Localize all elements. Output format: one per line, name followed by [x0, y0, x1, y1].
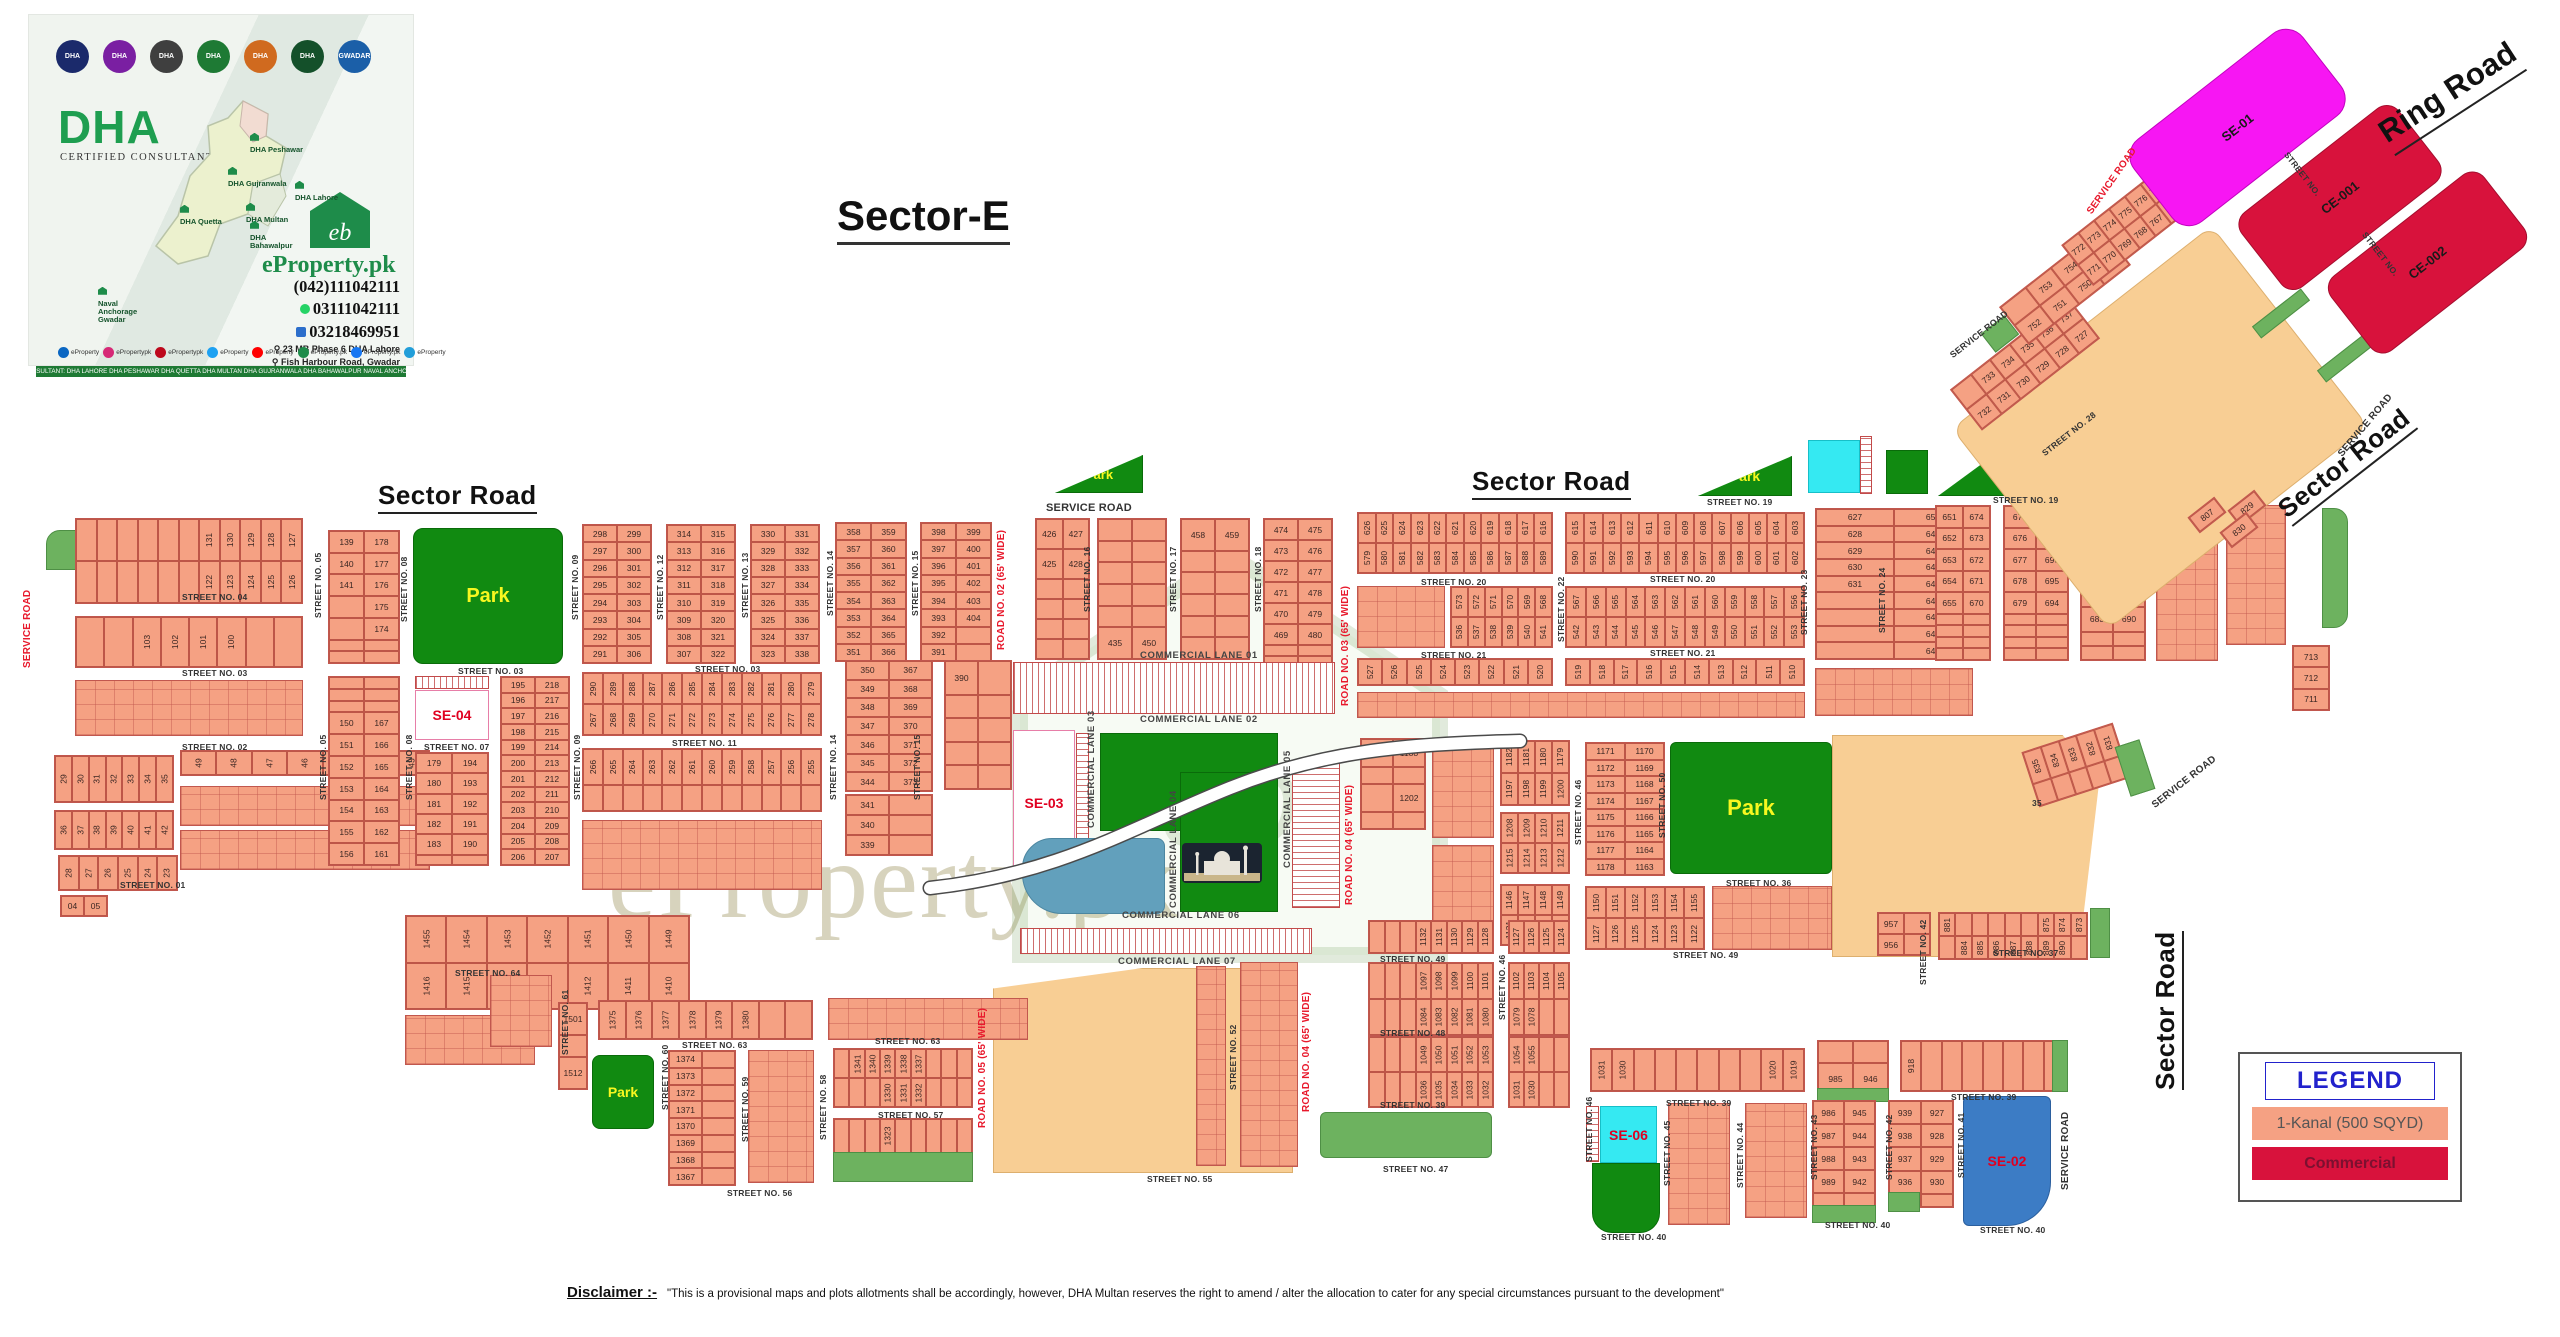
plot-block: 3303313293323283333273343263353253363243…	[750, 524, 820, 664]
partner-logo-icon: DHA	[197, 40, 230, 73]
plot-cell: 327	[751, 577, 785, 594]
plot-cell: 193	[452, 773, 488, 793]
plot-block	[1668, 1103, 1730, 1225]
plot-cell: 211	[535, 787, 569, 803]
plot-cell: 305	[617, 629, 651, 646]
plot-cell	[1063, 639, 1090, 659]
plot-cell: 279	[801, 673, 821, 704]
plot-cell: 620	[1464, 513, 1482, 543]
plot-block: 651674652673653672654671655670	[1935, 505, 1991, 661]
plot-cell: 652	[1936, 528, 1963, 550]
plot-cell: 885	[1972, 936, 1988, 959]
plot-cell: 550	[1725, 617, 1745, 647]
plot-cell: 316	[701, 542, 735, 559]
plot-cell	[643, 785, 663, 811]
plot-block: 29303132333435	[54, 755, 174, 803]
city-marker: DHA Peshawar	[250, 128, 310, 154]
street-label: STREET NO. 18	[1253, 547, 1263, 612]
plot-cell: 551	[1745, 617, 1765, 647]
plot-cell: 396	[921, 558, 956, 575]
plot-cell: 367	[889, 661, 932, 680]
plot-cell: 326	[751, 594, 785, 611]
plot-cell: 40	[122, 811, 139, 849]
green-strip	[1320, 1112, 1492, 1158]
plot-cell: 624	[1393, 513, 1411, 543]
plot-cell: 366	[871, 644, 906, 661]
plot-cell: 943	[1844, 1147, 1875, 1170]
plot-cell: 927	[1921, 1101, 1953, 1124]
plot-cell: 622	[1429, 513, 1447, 543]
plot-cell: 537	[1468, 617, 1485, 647]
map-block	[1808, 440, 1860, 493]
plot-cell: 559	[1725, 587, 1745, 617]
plot-block: 2902892882872862852842832822812802792672…	[582, 672, 822, 736]
plot-cell: 695	[2036, 571, 2068, 593]
plot-cell: 152	[329, 756, 364, 778]
plot-cell: 344	[846, 772, 889, 791]
plot-cell: 1369	[669, 1135, 702, 1152]
street-label: STREET NO. 19	[1993, 495, 2058, 505]
plot-cell: 333	[785, 560, 819, 577]
plot-cell: 274	[722, 704, 742, 735]
plot-cell: 459	[1215, 519, 1249, 551]
plot-cell: 258	[742, 749, 762, 785]
plot-cell: 351	[836, 644, 871, 661]
street-label: STREET NO. 21	[1421, 650, 1486, 660]
plot-cell	[274, 617, 302, 667]
phone-landline: (042)111042111	[272, 276, 400, 298]
plot-cell	[1132, 519, 1166, 541]
street-label: STREET NO. 16	[1082, 547, 1092, 612]
plot-cell: 1031	[1509, 1072, 1524, 1107]
plot-cell: 1173	[1586, 776, 1625, 793]
plot-cell: 564	[1626, 587, 1646, 617]
plot-cell: 181	[416, 794, 452, 814]
plot-cell: 191	[452, 814, 488, 834]
plot-cell: 1033	[1462, 1072, 1478, 1107]
plot-cell	[941, 1119, 956, 1153]
plot-cell: 1019	[1783, 1049, 1804, 1091]
street-label: STREET NO. 22	[1556, 577, 1566, 642]
plot-block: 527526525524523522521520	[1357, 658, 1553, 686]
plot-cell: 469	[1264, 624, 1298, 645]
plot-cell	[329, 596, 364, 618]
plot-cell: 929	[1921, 1147, 1953, 1170]
plot-cell: 591	[1584, 543, 1602, 573]
plot-cell	[1181, 594, 1215, 616]
commercial-lane-label: COMMERCIAL LANE 02	[1140, 714, 1258, 725]
plot-cell	[945, 765, 978, 789]
plot-cell: 319	[701, 594, 735, 611]
plot-cell	[1963, 637, 1990, 649]
plot-cell: 605	[1749, 513, 1767, 543]
dha-house-icon	[295, 181, 304, 189]
plot-cell: 302	[617, 577, 651, 594]
plot-cell: 546	[1645, 617, 1665, 647]
plot-cell: 269	[623, 704, 643, 735]
plot-cell	[364, 677, 399, 689]
plot-block: 13741373137213711370136913681367	[668, 1050, 736, 1186]
plot-cell: 670	[1963, 592, 1990, 614]
plot-cell: 1099	[1447, 963, 1463, 999]
legend-item-commercial: Commercial	[2252, 1147, 2448, 1180]
plot-cell: 579	[1358, 543, 1376, 573]
plot-cell: 257	[762, 749, 782, 785]
plot-cell: 390	[945, 661, 978, 695]
plot-cell: 1030	[1524, 1072, 1539, 1107]
plot-cell: 536	[1451, 617, 1468, 647]
plot-cell	[1963, 648, 1990, 660]
plot-cell: 515	[1661, 659, 1685, 685]
plot-cell: 519	[1566, 659, 1590, 685]
plot-cell	[702, 1085, 735, 1102]
plot-cell: 547	[1665, 617, 1685, 647]
plot-cell: 1177	[1586, 842, 1625, 859]
plot-cell: 1079	[1509, 999, 1524, 1035]
social-link: ePropertypk	[155, 347, 203, 358]
plot-cell: 267	[583, 704, 603, 735]
plot-cell	[1385, 921, 1401, 953]
plot-cell: 313	[667, 542, 701, 559]
plot-cell: 217	[535, 693, 569, 709]
plot-cell: 35	[156, 756, 173, 802]
dha-house-icon	[98, 287, 107, 295]
plot-cell	[957, 1119, 972, 1153]
street-label: STREET NO. 14	[828, 735, 838, 800]
zone-park: Park	[1698, 456, 1792, 496]
street-label: STREET NO. 57	[878, 1110, 943, 1120]
plot-cell: 526	[1382, 659, 1406, 685]
plot-cell: 304	[617, 611, 651, 628]
plot-cell: 322	[701, 646, 735, 663]
street-label: ROAD NO. 02 (65' WIDE)	[996, 530, 1007, 650]
plot-cell: 47	[252, 751, 287, 775]
plot-block: 12081209121012111215121412131212	[1500, 812, 1570, 874]
plot-cell: 1212	[1552, 843, 1569, 873]
plot-cell	[2036, 614, 2068, 626]
plot-cell: 373	[889, 772, 932, 791]
plot-cell: 337	[785, 629, 819, 646]
plot-cell: 129	[240, 519, 261, 561]
plot-cell: 364	[871, 609, 906, 626]
plot-cell	[1036, 639, 1063, 659]
plot-cell	[1098, 584, 1132, 606]
plot-cell: 1123	[1665, 918, 1685, 949]
plot-block	[1240, 962, 1298, 1167]
plot-cell: 1124	[1645, 918, 1665, 949]
plot-cell: 1122	[1684, 918, 1704, 949]
plot-cell: 218	[535, 677, 569, 693]
plot-cell: 330	[751, 525, 785, 542]
zone-park: Park	[592, 1055, 654, 1129]
plot-cell: 284	[702, 673, 722, 704]
plot-cell: 286	[662, 673, 682, 704]
plot-cell: 613	[1603, 513, 1621, 543]
plot-cell: 317	[701, 560, 735, 577]
plot-cell: 216	[535, 708, 569, 724]
plot-cell: 541	[1535, 617, 1552, 647]
plot-block	[1815, 668, 1973, 716]
plot-cell: 874	[2054, 913, 2070, 936]
plot-block	[1357, 586, 1445, 648]
plot-cell: 156	[329, 843, 364, 865]
social-link: eProperty	[207, 347, 248, 358]
plot-cell: 321	[701, 629, 735, 646]
plot-cell: 1416	[406, 963, 446, 1010]
street-label: STREET NO. 42	[1918, 920, 1928, 985]
plot-cell: 1373	[669, 1068, 702, 1085]
street-label: STREET NO. 07	[424, 742, 489, 752]
plot-cell: 1170	[1625, 743, 1664, 760]
plot-cell: 426	[1036, 519, 1063, 549]
mobile-icon	[296, 327, 306, 337]
plot-cell: 352	[836, 627, 871, 644]
plot-cell: 1323	[880, 1119, 895, 1153]
plot-cell	[452, 855, 488, 865]
commercial-lane-label: COMMERCIAL LANE 06	[1122, 910, 1240, 921]
plot-cell	[138, 519, 159, 561]
legend: LEGEND 1-Kanal (500 SQYD) Commercial	[2238, 1052, 2462, 1202]
plot-cell: 361	[871, 558, 906, 575]
plot-cell: 1372	[669, 1085, 702, 1102]
plot-block: 435450	[1097, 518, 1167, 660]
plot-cell	[329, 640, 364, 652]
plot-cell: 49	[181, 751, 216, 775]
partner-logo-icon: GWADAR	[338, 40, 371, 73]
plot-cell: 100	[217, 617, 245, 667]
zone-se-02: SE-02	[1963, 1096, 2051, 1226]
plot-cell	[1400, 1037, 1416, 1072]
plot-cell: 1189	[1361, 739, 1393, 767]
plot-cell: 517	[1614, 659, 1638, 685]
zone-label: Park	[1699, 457, 1791, 495]
street-label: STREET NO. 46	[1584, 1097, 1594, 1162]
plot-cell	[2005, 913, 2021, 936]
zone-label: SE-06	[1601, 1107, 1656, 1162]
street-label: STREET NO. 39	[1666, 1098, 1731, 1108]
plot-cell: 1030	[1612, 1049, 1633, 1091]
plot-cell	[945, 695, 978, 719]
plot-cell	[1539, 1072, 1554, 1107]
plot-cell: 677	[2004, 549, 2036, 571]
plot-cell: 1100	[1462, 963, 1478, 999]
plot-cell: 510	[1780, 659, 1804, 685]
plot-cell: 1341	[849, 1049, 864, 1078]
plot-cell	[926, 1078, 941, 1107]
plot-cell	[702, 1152, 735, 1169]
plot-cell: 179	[416, 753, 452, 773]
plot-cell: 1453	[487, 916, 527, 963]
plot-cell: 1512	[559, 1057, 587, 1089]
plot-cell: 601	[1767, 543, 1785, 573]
plot-cell: 930	[1921, 1171, 1953, 1194]
plot-cell	[2003, 1041, 2023, 1091]
plot-block: 110211031104110510791078	[1508, 962, 1570, 1036]
plot-cell	[1942, 1041, 1962, 1091]
plot-cell: 262	[662, 749, 682, 785]
plot-cell	[2036, 648, 2068, 660]
plot-cell: 369	[889, 698, 932, 717]
plot-cell: 1125	[1539, 921, 1554, 953]
plot-block: 5675665655645635625615605595585575565425…	[1565, 586, 1805, 648]
street-label: STREET NO. 02	[182, 742, 247, 752]
plot-cell	[1361, 767, 1393, 785]
plot-cell	[158, 519, 179, 561]
green-strip	[833, 1152, 973, 1182]
plot-cell: 161	[364, 843, 399, 865]
plot-cell: 1078	[1524, 999, 1539, 1035]
social-link: eProperty.pk	[351, 347, 400, 358]
plot-block: 1952181962171972161982151992142002132012…	[500, 676, 570, 866]
plot-cell	[1098, 562, 1132, 584]
plot-cell: 301	[617, 560, 651, 577]
plot-block: 11821181118011791197119811991200	[1500, 740, 1570, 806]
plot-cell	[364, 689, 399, 701]
plot-cell: 1129	[1462, 921, 1478, 953]
plot-cell: 590	[1566, 543, 1584, 573]
plot-cell: 1198	[1518, 773, 1535, 805]
plot-cell: 1155	[1684, 887, 1704, 918]
water-body	[1022, 838, 1165, 914]
plot-cell	[1921, 1194, 1953, 1207]
plot-cell: 288	[623, 673, 643, 704]
plot-cell	[138, 561, 159, 603]
street-label: ROAD NO. 04 (65' WIDE)	[1344, 785, 1355, 905]
plot-cell: 34	[139, 756, 156, 802]
plot-cell: 522	[1479, 659, 1503, 685]
street-label: STREET NO. 40	[1980, 1225, 2045, 1235]
plot-cell	[1676, 1049, 1697, 1091]
street-label: SERVICE ROAD	[2060, 1112, 2071, 1190]
plot-block: 341340339	[845, 794, 933, 856]
plot-cell: 398	[921, 523, 956, 540]
plot-cell	[246, 617, 274, 667]
plot-cell	[1132, 541, 1166, 563]
plot-cell: 336	[785, 611, 819, 628]
plot-cell: 1188	[1393, 739, 1425, 767]
plot-cell	[1385, 1037, 1401, 1072]
plot-cell: 33	[122, 756, 139, 802]
plot-cell: 295	[583, 577, 617, 594]
social-icon	[298, 347, 309, 358]
plot-cell: 619	[1481, 513, 1499, 543]
plot-cell: 1164	[1625, 842, 1664, 859]
plot-cell: 335	[785, 594, 819, 611]
social-link: eProperty	[252, 347, 293, 358]
plot-cell: 616	[1534, 513, 1552, 543]
plot-cell: 272	[682, 704, 702, 735]
plot-cell: 1374	[669, 1051, 702, 1068]
plot-cell: 1213	[1535, 843, 1552, 873]
plot-block: 474475473476472477471478470479469480	[1263, 518, 1333, 668]
plot-cell: 610	[1658, 513, 1676, 543]
plot-cell	[1963, 625, 1990, 637]
plot-cell: 654	[1936, 571, 1963, 593]
plot-cell: 606	[1731, 513, 1749, 543]
plot-cell: 141	[329, 574, 364, 596]
plot-cell: 182	[416, 814, 452, 834]
plot-cell: 209	[535, 818, 569, 834]
plot-cell: 28	[59, 856, 79, 890]
plot-cell: 1210	[1535, 813, 1552, 843]
plot-cell: 357	[836, 540, 871, 557]
plot-cell: 128	[261, 519, 282, 561]
plot-cell: 1375	[599, 1001, 626, 1039]
plot-cell	[801, 785, 821, 811]
plot-block: 13411340133913381337133013311332	[833, 1048, 973, 1108]
plot-cell	[849, 1078, 864, 1107]
plot-cell: 359	[871, 523, 906, 540]
plot-cell: 1367	[669, 1168, 702, 1185]
plot-cell: 580	[1376, 543, 1394, 573]
plot-cell: 479	[1298, 603, 1332, 624]
plot-cell	[1816, 642, 1894, 659]
plot-cell	[1132, 562, 1166, 584]
plot-cell: 1200	[1552, 773, 1569, 805]
plot-cell: 208	[535, 834, 569, 850]
street-label: STREET NO. 52	[1228, 1025, 1238, 1090]
plot-cell	[1215, 551, 1249, 573]
plot-cell: 544	[1606, 617, 1626, 647]
street-label: STREET NO. 23	[1799, 570, 1809, 635]
plot-cell: 1049	[1416, 1037, 1432, 1072]
plot-cell	[702, 1101, 735, 1118]
plot-cell	[1361, 784, 1393, 812]
plot-cell: 626	[1358, 513, 1376, 543]
street-label: STREET NO. 01	[120, 880, 185, 890]
plot-cell: 348	[846, 698, 889, 717]
street-label: STREET NO. 61	[560, 990, 570, 1055]
plot-cell: 573	[1451, 587, 1468, 617]
plot-cell: 570	[1502, 587, 1519, 617]
city-marker: DHA Bahawalpur	[250, 216, 310, 250]
plot-cell: 557	[1764, 587, 1784, 617]
plot-cell: 1179	[1552, 741, 1569, 773]
plot-block	[1357, 692, 1805, 718]
street-label: STREET NO. 44	[1735, 1123, 1745, 1188]
plot-cell	[1369, 1037, 1385, 1072]
plot-cell	[957, 1049, 972, 1078]
partner-logos: DHADHADHADHADHADHAGWADAR	[56, 40, 386, 73]
plot-cell	[781, 785, 801, 811]
plot-cell	[926, 1119, 941, 1153]
plot-cell: 595	[1658, 543, 1676, 573]
plot-cell: 1150	[1586, 887, 1606, 918]
plot-cell: 32	[106, 756, 123, 802]
plot-cell: 1124	[1554, 921, 1569, 953]
plot-cell	[742, 785, 762, 811]
plot-cell: 260	[702, 749, 722, 785]
plot-cell	[1098, 541, 1132, 563]
city-marker: Naval Anchorage Gwadar	[98, 282, 158, 324]
commercial-lane-label: COMMERCIAL LANE 05	[1282, 750, 1293, 868]
plot-cell: 607	[1712, 513, 1730, 543]
plot-cell: 309	[667, 611, 701, 628]
plot-cell	[785, 1001, 812, 1039]
plot-cell: 545	[1626, 617, 1646, 647]
plot-cell	[895, 1119, 910, 1153]
plot-cell: 192	[452, 794, 488, 814]
plot-cell: 1128	[1478, 921, 1494, 953]
plot-cell: 296	[583, 560, 617, 577]
plot-cell: 1127	[1509, 921, 1524, 953]
plot-cell	[849, 1119, 864, 1153]
plot-cell: 873	[2071, 913, 2087, 936]
street-label: STREET NO. 37	[1993, 948, 2058, 958]
plot-cell	[329, 618, 364, 640]
partner-logo-icon: DHA	[291, 40, 324, 73]
partner-logo-icon: DHA	[244, 40, 277, 73]
